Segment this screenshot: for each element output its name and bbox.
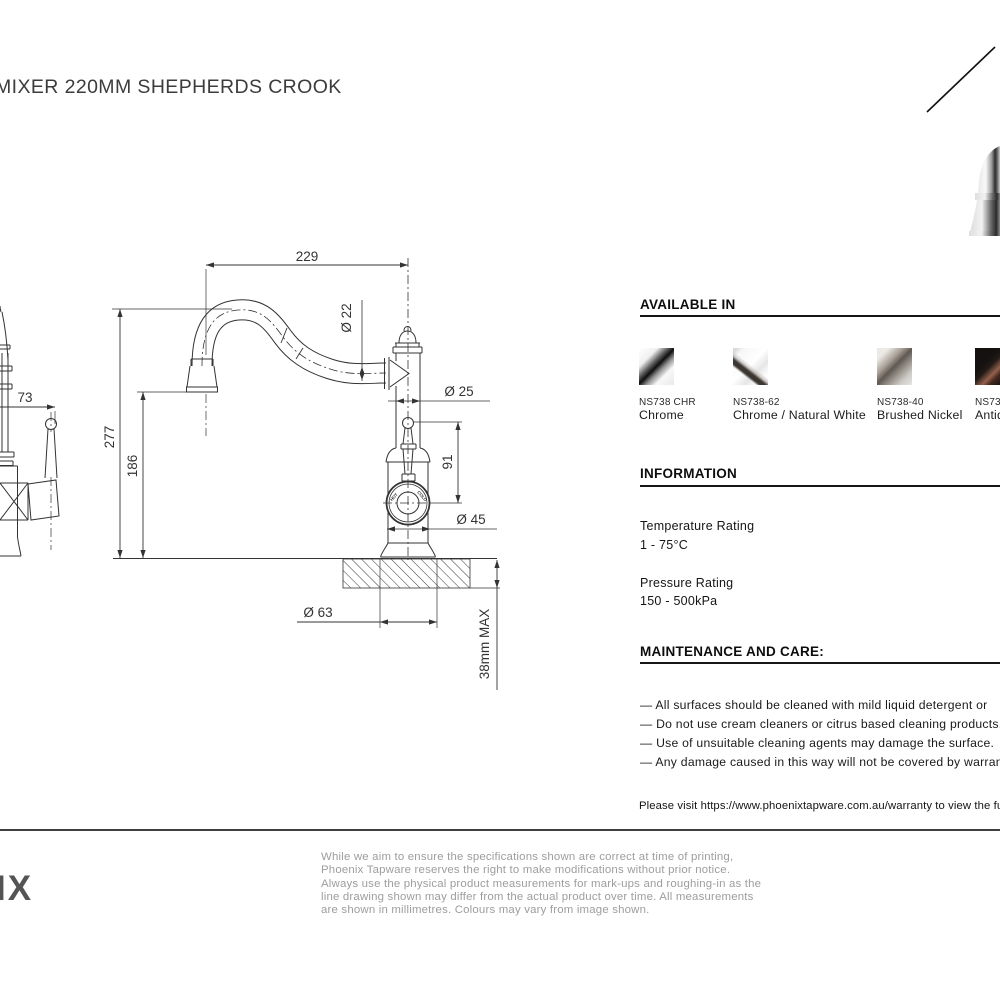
information-heading: INFORMATION: [640, 466, 737, 481]
dim-outlet-height: 186: [125, 455, 140, 478]
finish-swatch-brushed-nickel: [877, 348, 912, 385]
finish-name: Brushed Nickel: [877, 408, 963, 422]
finish-code: NS738: [975, 397, 1000, 408]
disclaimer-line: are shown in millimetres. Colours may va…: [321, 904, 761, 917]
spec-sheet-page: { "title": "MIXER 220MM SHEPHERDS CROOK"…: [0, 0, 1000, 1000]
available-in-heading: AVAILABLE IN: [640, 297, 736, 312]
dim-spout-dia: Ø 22: [339, 303, 354, 332]
dim-handle-height: 91: [440, 454, 455, 469]
dim-overall-height: 277: [102, 426, 117, 449]
page-title: MIXER 220MM SHEPHERDS CROOK: [0, 76, 342, 99]
finish-code: NS738 CHR: [639, 397, 696, 408]
disclaimer-line: While we aim to ensure the specification…: [321, 851, 761, 864]
finish-swatch-chrome: [639, 348, 674, 385]
disclaimer-line: line drawing shown may differ from the a…: [321, 891, 761, 904]
maintenance-bullet: — Any damage caused in this way will not…: [640, 755, 1000, 769]
dim-side-reach: 73: [17, 390, 32, 405]
finish-code: NS738-40: [877, 397, 963, 408]
corner-decoration: [900, 0, 1000, 260]
product-photo-fragment: [969, 146, 1000, 236]
information-rule: [640, 485, 1000, 487]
maintenance-rule: [640, 662, 1000, 664]
dim-base-dia: Ø 63: [303, 605, 332, 620]
temperature-rating-value: 1 - 75°C: [640, 538, 688, 552]
phoenix-logo-fragment: IX: [0, 869, 33, 909]
maintenance-heading: MAINTENANCE AND CARE:: [640, 644, 824, 659]
dim-bench-max: 38mm MAX: [477, 609, 492, 680]
maintenance-bullet: — Do not use cream cleaners or citrus ba…: [640, 717, 1000, 731]
dim-spout-reach: 229: [296, 249, 319, 264]
diagonal-line: [927, 47, 995, 112]
finish-swatch-chrome-natural-white: [733, 348, 768, 385]
temperature-rating-label: Temperature Rating: [640, 519, 754, 533]
finish-item-antique: NS738 Antiq: [975, 348, 1000, 422]
footer-rule: [0, 829, 1000, 831]
dim-body-dia: Ø 25: [444, 384, 473, 399]
finish-name: Chrome / Natural White: [733, 408, 866, 422]
finish-item-brushed-nickel: NS738-40 Brushed Nickel: [877, 348, 963, 422]
pressure-rating-value: 150 - 500kPa: [640, 594, 717, 608]
maintenance-bullet: — Use of unsuitable cleaning agents may …: [640, 736, 994, 750]
finish-name: Antiq: [975, 408, 1000, 422]
pressure-rating-label: Pressure Rating: [640, 576, 733, 590]
disclaimer-line: Always use the physical product measurem…: [321, 878, 761, 891]
finish-item-chrome-natural-white: NS738-62 Chrome / Natural White: [733, 348, 866, 422]
technical-drawing: 229 Ø 22 Ø 25 277 186 91 Ø 45 Ø 63 38mm …: [0, 240, 630, 710]
finish-item-chrome: NS738 CHR Chrome: [639, 348, 696, 422]
disclaimer-line: Phoenix Tapware reserves the right to ma…: [321, 864, 761, 877]
finish-code: NS738-62: [733, 397, 866, 408]
dim-body-width: Ø 45: [456, 512, 485, 527]
maintenance-bullet: — All surfaces should be cleaned with mi…: [640, 698, 987, 712]
available-in-rule: [640, 315, 1000, 317]
finish-name: Chrome: [639, 408, 696, 422]
warranty-note: Please visit https://www.phoenixtapware.…: [639, 800, 1000, 812]
disclaimer-block: While we aim to ensure the specification…: [321, 851, 761, 917]
finish-swatch-antique: [975, 348, 1000, 385]
